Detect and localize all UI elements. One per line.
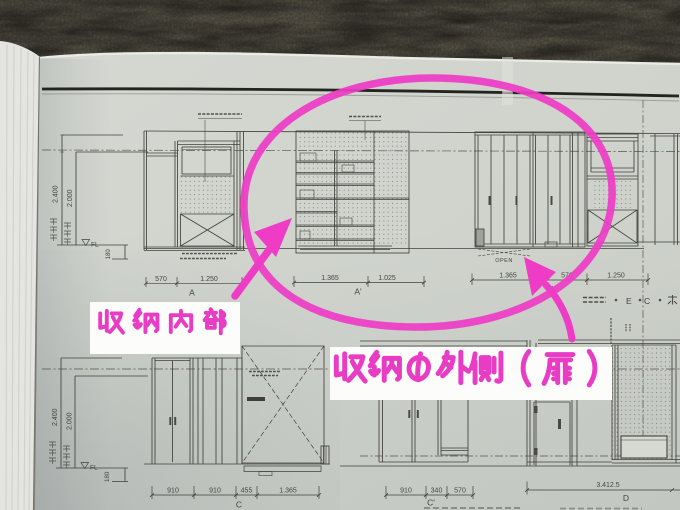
svg-text:1.250: 1.250 [200, 276, 218, 283]
svg-text:2.400: 2.400 [53, 185, 60, 203]
svg-text:OPEN: OPEN [495, 258, 513, 264]
svg-text:C': C' [427, 498, 435, 508]
svg-text:3.412.5: 3.412.5 [596, 482, 619, 489]
svg-text:180: 180 [104, 471, 111, 482]
svg-text:910: 910 [400, 488, 412, 495]
svg-text:C: C [236, 500, 242, 510]
svg-text:2.000: 2.000 [67, 189, 74, 207]
svg-text:570: 570 [454, 488, 466, 495]
svg-text:2.000: 2.000 [67, 412, 74, 430]
svg-text:340: 340 [431, 488, 443, 495]
svg-text:455: 455 [241, 488, 253, 495]
svg-text:910: 910 [167, 488, 179, 495]
svg-text:1.365: 1.365 [499, 273, 517, 280]
svg-text:1.365: 1.365 [279, 488, 297, 495]
svg-text:C: C [644, 296, 650, 306]
svg-text:E: E [626, 296, 632, 306]
svg-text:A': A' [354, 287, 362, 297]
svg-text:1.250: 1.250 [607, 273, 625, 280]
svg-text:2.400: 2.400 [52, 408, 59, 426]
svg-text:1.365: 1.365 [321, 275, 339, 282]
svg-text:180: 180 [105, 249, 112, 260]
svg-text:FL: FL [91, 242, 99, 249]
svg-text:FL: FL [90, 465, 98, 472]
svg-text:910: 910 [209, 488, 221, 495]
svg-text:570: 570 [155, 276, 167, 283]
svg-text:D: D [623, 493, 629, 503]
svg-text:1.025: 1.025 [378, 275, 396, 282]
svg-text:A: A [189, 288, 195, 298]
